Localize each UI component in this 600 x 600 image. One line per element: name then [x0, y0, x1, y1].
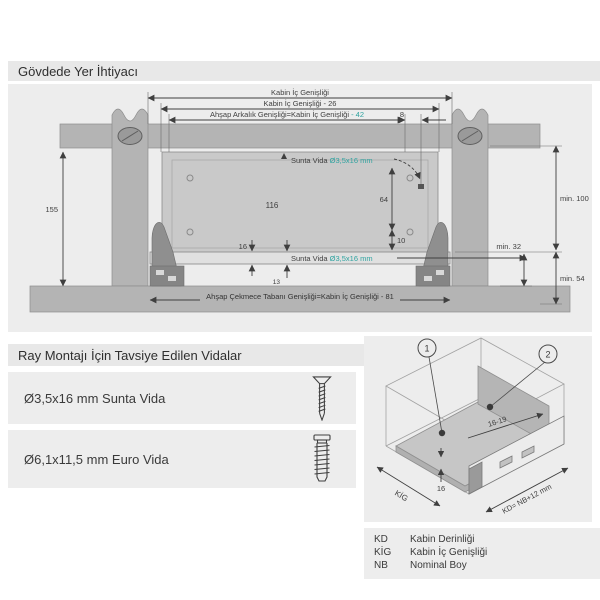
callout-1: 1: [424, 344, 429, 354]
legend-abbr: KİG: [374, 546, 410, 559]
dim-kig: KİG: [393, 488, 409, 503]
page-title: Gövdede Yer İhtiyacı: [18, 64, 138, 79]
legend-row: KD Kabin Derinliği: [374, 533, 600, 546]
legend: KD Kabin Derinliği KİG Kabin İç Genişliğ…: [364, 528, 600, 579]
legend-row: KİG Kabin İç Genişliği: [374, 546, 600, 559]
dim-8: 8: [400, 110, 404, 119]
callout-2: 2: [545, 350, 550, 360]
dim-top2: Kabin İç Genişliği - 26: [264, 99, 337, 108]
dim-13: 13: [273, 279, 281, 286]
cross-section-panel: Kabin İç Genişliği Kabin İç Genişliği - …: [8, 84, 592, 332]
dim-155: 155: [45, 205, 58, 214]
screws-title-bar: Ray Montajı İçin Tavsiye Edilen Vidalar: [8, 344, 366, 366]
dim-kd: KD= NB+12 mm: [501, 482, 553, 516]
screw-label: Ø6,1x11,5 mm Euro Vida: [8, 452, 302, 467]
page-title-bar: Gövdede Yer İhtiyacı: [8, 61, 600, 81]
cross-section-drawing: Kabin İç Genişliği Kabin İç Genişliği - …: [8, 84, 592, 332]
screws-title: Ray Montajı İçin Tavsiye Edilen Vidalar: [18, 348, 242, 363]
screw-target: [418, 184, 424, 189]
drawer-iso: [396, 366, 564, 494]
screw-label: Ø3,5x16 mm Sunta Vida: [8, 391, 302, 406]
dim-min54: min. 54: [560, 274, 585, 283]
dim-116: 116: [266, 201, 279, 210]
dim-64: 64: [380, 195, 388, 204]
dim-16-iso: 16: [437, 484, 445, 493]
dim-bottom-width: Ahşap Çekmece Tabanı Genişliği=Kabin İç …: [206, 292, 394, 301]
dim-top1: Kabin İç Genişliği: [271, 88, 329, 97]
legend-abbr: NB: [374, 559, 410, 572]
legend-abbr: KD: [374, 533, 410, 546]
screw-label-top: Sunta Vida Ø3,5x16 mm: [291, 156, 373, 165]
legend-label: Kabin Derinliği: [410, 533, 474, 546]
screw-label-bottom: Sunta Vida Ø3,5x16 mm: [291, 254, 373, 263]
dim-min32: min. 32: [496, 242, 521, 251]
dim-top3: Ahşap Arkalık Genişliği=Kabin İç Genişli…: [210, 110, 364, 119]
dim-10: 10: [397, 236, 405, 245]
legend-row: NB Nominal Boy: [374, 559, 600, 572]
dim-16: 16: [239, 242, 247, 251]
euro-screw-icon: [302, 434, 342, 484]
isometric-panel: 1 2 KİG KD= NB+12 mm 16-19 16: [364, 336, 592, 522]
isometric-drawing: 1 2 KİG KD= NB+12 mm 16-19 16: [364, 336, 592, 522]
legend-label: Nominal Boy: [410, 559, 467, 572]
legend-label: Kabin İç Genişliği: [410, 546, 487, 559]
countersunk-screw-icon: [302, 375, 342, 421]
dim-min100: min. 100: [560, 194, 589, 203]
screw-row-euro: Ø6,1x11,5 mm Euro Vida: [8, 430, 356, 488]
screw-row-sunta: Ø3,5x16 mm Sunta Vida: [8, 372, 356, 424]
